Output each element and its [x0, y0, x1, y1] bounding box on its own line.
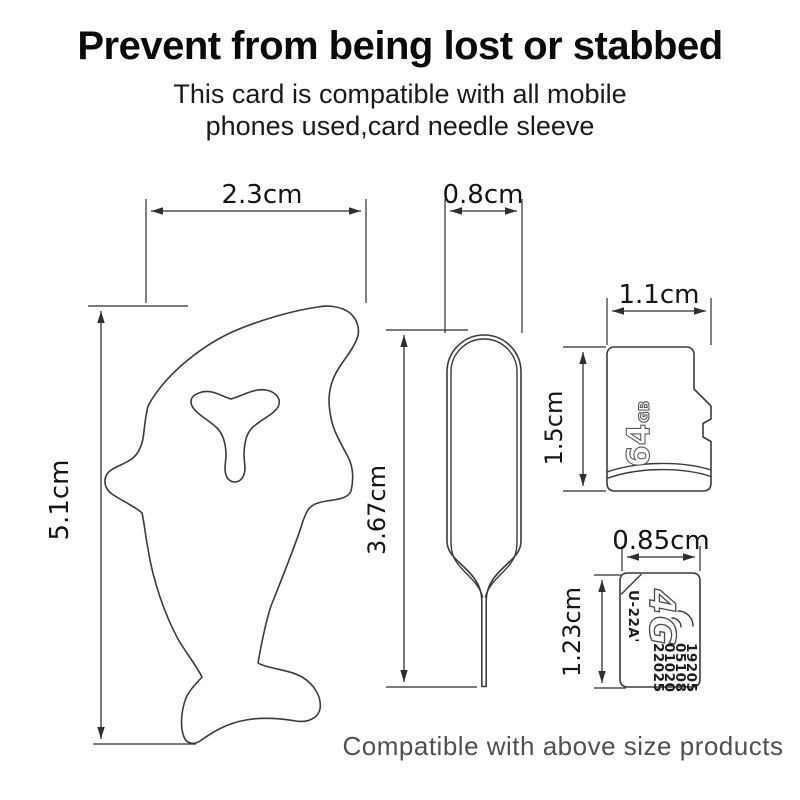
subtitle-line-2: phones used,card needle sleeve [206, 111, 595, 141]
dolphin-sleeve [105, 306, 358, 743]
footer-caption: Compatible with above size products [343, 731, 784, 761]
pin-width-dimension: 0.8cm [443, 180, 524, 333]
microsd-height-label: 1.5cm [540, 391, 568, 466]
dolphin-width-label: 2.3cm [222, 180, 303, 210]
sim-serial-line: 22025 [650, 643, 666, 692]
pin-outer-outline [447, 335, 521, 687]
sim-height-label: 1.23cm [558, 587, 586, 677]
sim-width-label: 0.85cm [612, 526, 710, 556]
sim-network-logo: 4G [641, 588, 682, 648]
dolphin-outline [105, 306, 358, 743]
pin-height-label: 3.67cm [363, 465, 391, 555]
microsd-width-dimension: 1.1cm [607, 280, 711, 345]
sim-card: 4G U-22A' 19205 05108 01020 22025 [620, 573, 700, 692]
dolphin-width-dimension: 2.3cm [146, 180, 366, 303]
pin-width-label: 0.8cm [443, 180, 524, 210]
dolphin-height-label: 5.1cm [45, 460, 75, 541]
page-title: Prevent from being lost or stabbed [0, 24, 800, 69]
header: Prevent from being lost or stabbed This … [0, 0, 800, 142]
microsd-card: 64GB [607, 347, 711, 491]
eject-pin [447, 335, 521, 687]
subtitle-line-1: This card is compatible with all mobile [173, 79, 626, 109]
sim-width-dimension: 0.85cm [612, 526, 710, 571]
microsd-width-label: 1.1cm [619, 280, 700, 310]
subtitle: This card is compatible with all mobile … [0, 79, 800, 142]
sim-model-label: U-22A' [625, 590, 641, 643]
product-size-diagram: Prevent from being lost or stabbed This … [0, 0, 800, 800]
sim-height-dimension: 1.23cm [558, 575, 626, 688]
microsd-height-dimension: 1.5cm [540, 347, 606, 491]
